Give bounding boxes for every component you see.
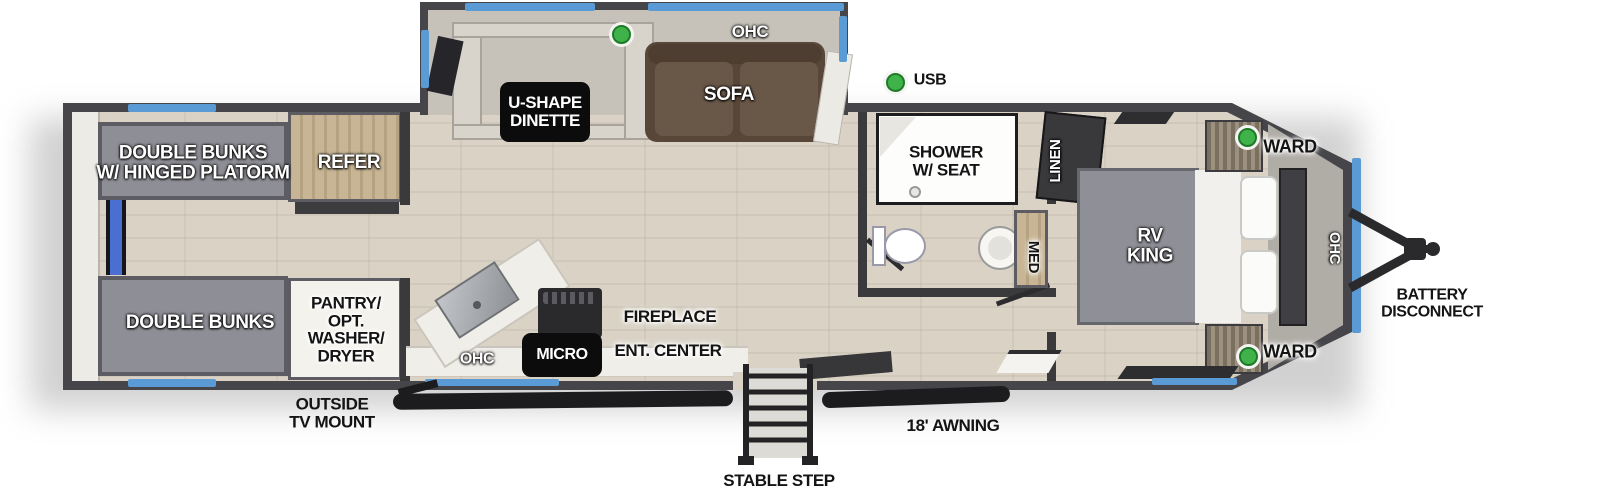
headboard-wardrobe (1279, 168, 1307, 326)
label-double-bunks-bottom: DOUBLE BUNKS (126, 313, 274, 333)
label-ohc-bedroom: OHC (1326, 232, 1342, 264)
label-fireplace: FIREPLACE (624, 308, 717, 326)
wall-refer-kitchen (400, 112, 410, 205)
window (128, 379, 216, 387)
usb-indicator-icon (612, 25, 631, 44)
dinette-label-text: U-SHAPE DINETTE (508, 94, 582, 130)
window (648, 3, 844, 11)
bathroom-sink-bowl (988, 236, 1012, 260)
label-ward-top: WARD (1263, 138, 1316, 157)
window (839, 16, 847, 62)
label-ward-bottom: WARD (1263, 343, 1316, 362)
label-double-bunks-top: DOUBLE BUNKS W/ HINGED PLATORM (96, 143, 289, 183)
sofa-back (648, 44, 822, 64)
label-outside-tv-mount: OUTSIDE TV MOUNT (289, 395, 375, 430)
label-sofa: SOFA (704, 85, 754, 105)
stable-step-ladder (736, 362, 820, 466)
label-pantry: PANTRY/ OPT. WASHER/ DRYER (308, 295, 385, 366)
refrigerator-base (295, 202, 399, 214)
pillow-top (1240, 176, 1278, 240)
wall-bathroom-left (858, 112, 867, 296)
label-battery-disconnect: BATTERY DISCONNECT (1381, 287, 1483, 320)
usb-legend-icon (886, 73, 905, 92)
window (421, 30, 429, 88)
stove-burner-row (543, 292, 597, 304)
label-ent-center: ENT. CENTER (614, 342, 721, 360)
label-rv-king: RV KING (1127, 226, 1173, 266)
hitch-a-frame (1340, 196, 1440, 301)
window (465, 3, 595, 11)
wardrobe-top (1205, 120, 1263, 172)
microwave-label: MICRO (536, 347, 587, 364)
bedroom-top-valance (1114, 112, 1174, 124)
label-shower: SHOWER W/ SEAT (909, 143, 983, 178)
label-u-shape-dinette: U-SHAPE DINETTE (500, 82, 590, 142)
toilet (884, 228, 926, 264)
label-ohc-kitchen: OHC (460, 352, 494, 369)
bunk-ladder (106, 200, 126, 275)
label-awning: 18' AWNING (907, 417, 1000, 435)
usb-indicator-icon (1239, 347, 1258, 366)
pillow-bottom (1240, 250, 1278, 314)
usb-indicator-icon (1238, 128, 1257, 147)
window (425, 379, 559, 386)
bed-sheet (1195, 170, 1241, 323)
label-refer: REFER (318, 153, 380, 173)
label-usb: USB (914, 73, 947, 90)
label-linen: LINEN (1048, 139, 1064, 182)
window (1152, 378, 1237, 385)
shower-drain (909, 186, 921, 198)
label-stable-step: STABLE STEP (723, 472, 834, 490)
label-med: MED (1025, 241, 1041, 273)
floorplan-canvas: MICRO (0, 0, 1600, 492)
window (128, 104, 216, 112)
microwave: MICRO (522, 333, 602, 377)
label-ohc-slide: OHC (732, 23, 769, 41)
sink-drain (473, 301, 481, 309)
